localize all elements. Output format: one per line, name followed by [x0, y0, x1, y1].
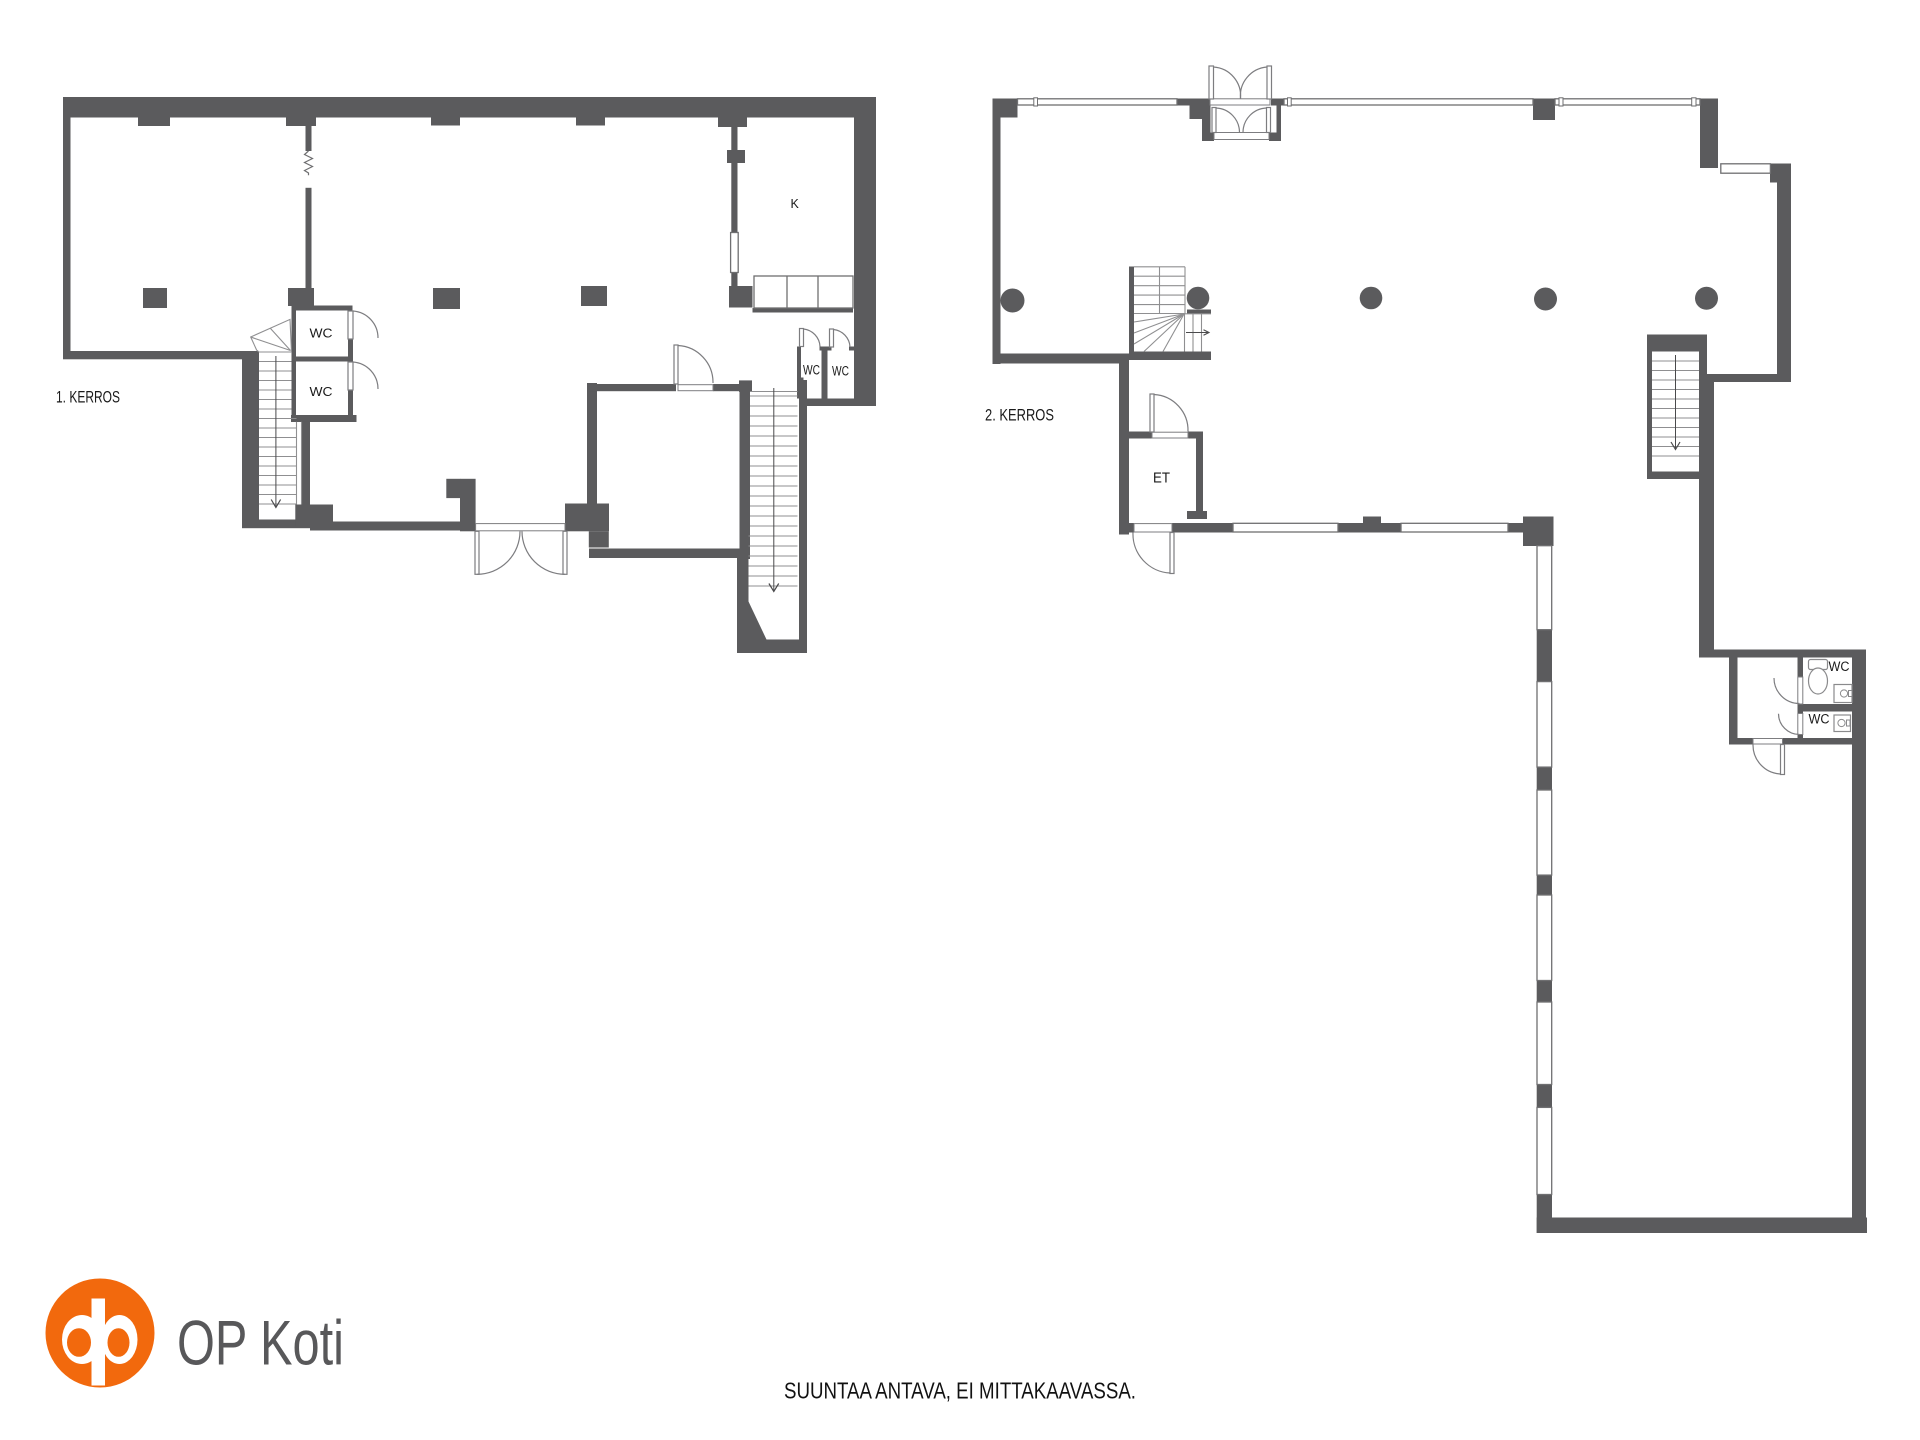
svg-text:WC: WC: [803, 363, 820, 378]
svg-text:2. KERROS: 2. KERROS: [985, 407, 1054, 425]
svg-text:K: K: [791, 197, 800, 211]
svg-text:1. KERROS: 1. KERROS: [56, 389, 120, 407]
svg-text:ET: ET: [1153, 471, 1170, 487]
svg-text:SUUNTAA ANTAVA, EI MITTAKAAVAS: SUUNTAA ANTAVA, EI MITTAKAAVASSA.: [784, 1378, 1136, 1404]
svg-text:WC: WC: [310, 326, 333, 341]
svg-text:WC: WC: [1829, 659, 1850, 674]
svg-text:OP Koti: OP Koti: [177, 1309, 344, 1379]
svg-text:WC: WC: [832, 364, 849, 379]
svg-text:WC: WC: [310, 384, 333, 399]
svg-text:WC: WC: [1809, 712, 1830, 727]
